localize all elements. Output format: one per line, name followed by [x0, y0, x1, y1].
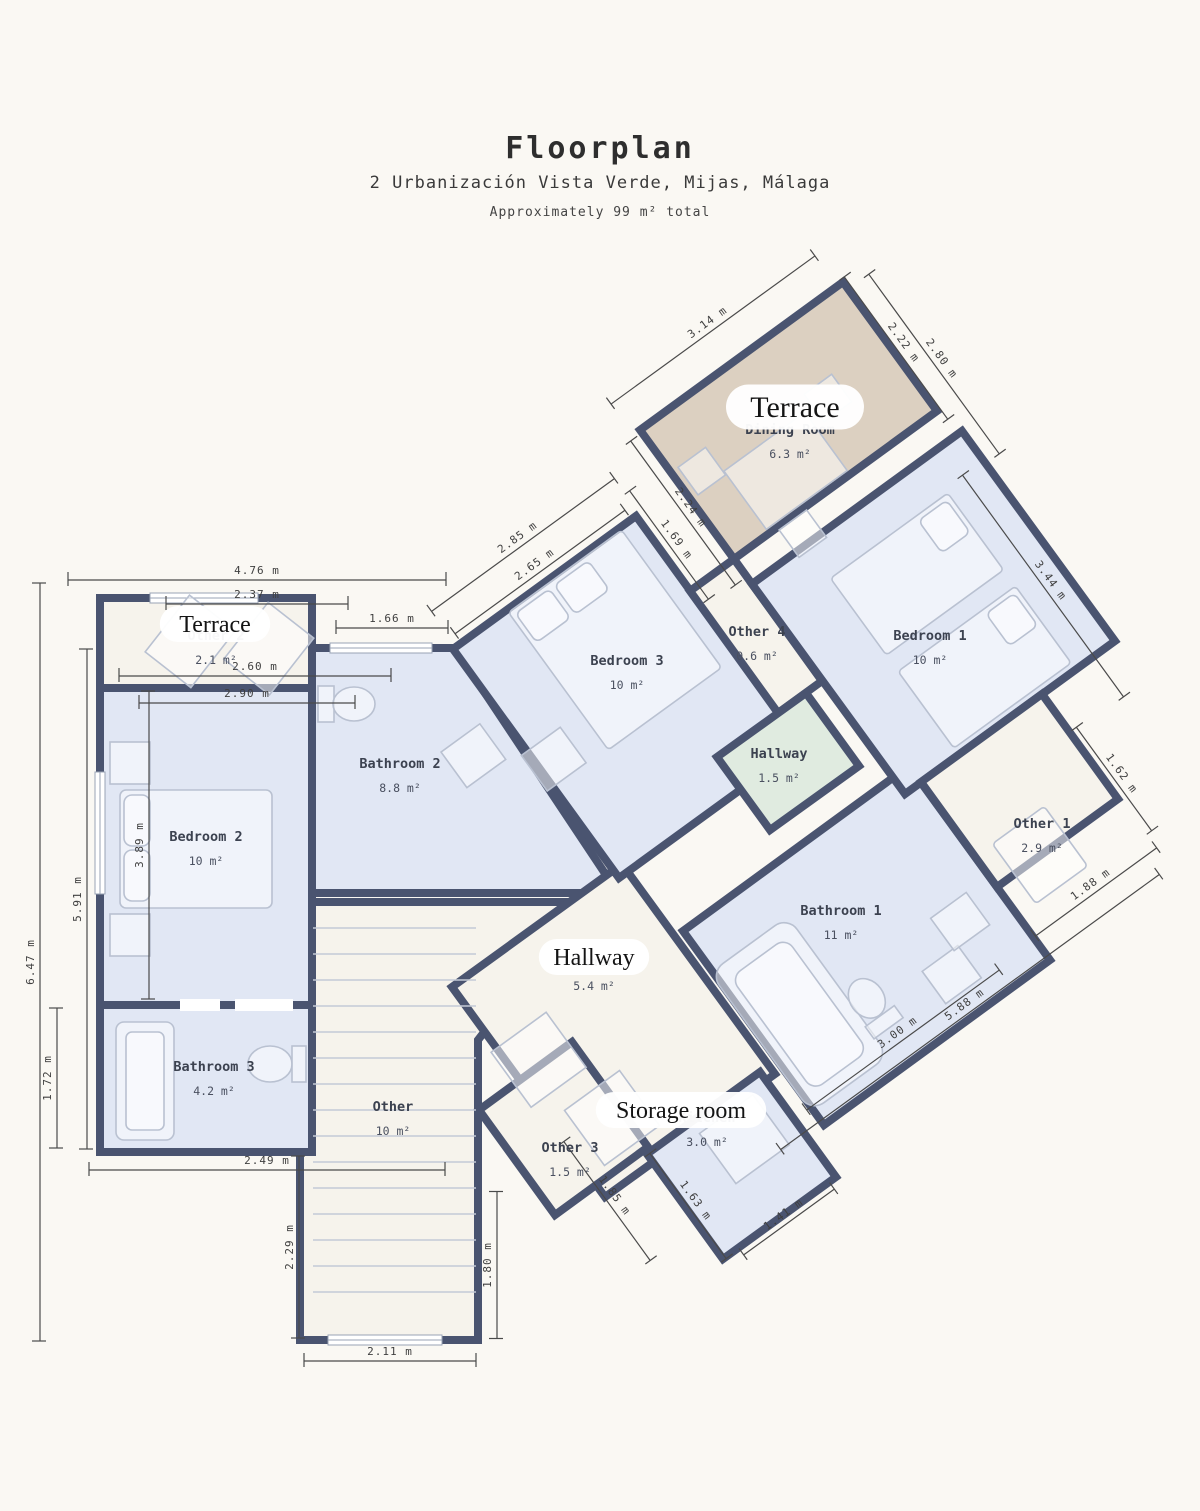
- dimension-4-76-m: 4.76 m: [68, 564, 446, 586]
- door-gap: [180, 999, 220, 1011]
- room-area-text: 10 m²: [189, 854, 224, 868]
- floorplan-page: Floorplan 2 Urbanización Vista Verde, Mi…: [0, 0, 1200, 1511]
- dimension-text: 2.90 m: [224, 687, 270, 700]
- pill-label-hallway: Hallway: [539, 939, 649, 975]
- address-line: 2 Urbanización Vista Verde, Mijas, Málag…: [370, 173, 831, 193]
- room-area-text: 1.5 m²: [549, 1165, 591, 1179]
- dimension-5-91-m: 5.91 m: [71, 649, 93, 1149]
- room-name-text: Other 1: [1014, 816, 1071, 832]
- toilet: [248, 1046, 306, 1082]
- bathtub: [116, 1022, 174, 1140]
- room-area-text: 5.4 m²: [573, 979, 615, 993]
- dimension-text: 4.76 m: [234, 564, 280, 577]
- window: [95, 772, 105, 894]
- dimension-text: 2.49 m: [244, 1154, 290, 1167]
- window: [328, 1335, 442, 1345]
- room-area-text: 2.1 m²: [195, 653, 237, 667]
- pill-text: Terrace: [750, 391, 839, 424]
- room-name-text: Bedroom 1: [893, 628, 966, 644]
- dimension-6-47-m: 6.47 m: [24, 583, 46, 1341]
- floorplan-svg: Floorplan 2 Urbanización Vista Verde, Mi…: [0, 0, 1200, 1511]
- dimension-1-66-m: 1.66 m: [336, 612, 448, 634]
- dimension-text: 1.66 m: [369, 612, 415, 625]
- room-area-text: 10 m²: [610, 678, 645, 692]
- subtitle-line: Approximately 99 m² total: [490, 205, 711, 220]
- window: [330, 643, 432, 653]
- room-area-text: 6.3 m²: [769, 447, 811, 461]
- room-name-text: Hallway: [751, 746, 808, 762]
- room-name-text: Other 3: [542, 1140, 599, 1156]
- dimension-text: 2.37 m: [234, 588, 280, 601]
- page-title: Floorplan: [505, 131, 695, 166]
- room-name-text: Bathroom 1: [800, 903, 881, 919]
- room-name-text: Other 4: [729, 624, 786, 640]
- room-name-text: Bedroom 3: [590, 653, 663, 669]
- pill-label-storage-room: Storage room: [596, 1092, 766, 1128]
- pill-label-terrace: Terrace: [160, 606, 270, 642]
- room-area-text: 11 m²: [824, 928, 859, 942]
- dimension-text: 2.11 m: [367, 1345, 413, 1358]
- dimension-1-72-m: 1.72 m: [41, 1008, 63, 1148]
- room-area-text: 10 m²: [376, 1124, 411, 1138]
- room-area-text: 1.5 m²: [758, 771, 800, 785]
- dimension-text: 2.29 m: [283, 1224, 296, 1270]
- toilet: [318, 686, 375, 722]
- room-name-text: Bathroom 3: [173, 1059, 254, 1075]
- pill-label-terrace: Terrace: [726, 385, 864, 430]
- pill-text: Terrace: [179, 612, 251, 638]
- room-area-text: 10 m²: [913, 653, 948, 667]
- room-area-text: 0.6 m²: [736, 649, 778, 663]
- room-area-text: 3.0 m²: [686, 1135, 728, 1149]
- pill-text: Storage room: [616, 1098, 746, 1124]
- room-name-text: Bathroom 2: [359, 756, 440, 772]
- door-gap: [235, 999, 293, 1011]
- pill-text: Hallway: [553, 945, 634, 971]
- room-area-text: 4.2 m²: [193, 1084, 235, 1098]
- header: Floorplan 2 Urbanización Vista Verde, Mi…: [370, 131, 831, 220]
- dimension-1-80-m: 1.80 m: [481, 1192, 503, 1339]
- dimension-text: 2.60 m: [232, 660, 278, 673]
- dimension-text: 3.89 m: [133, 822, 146, 868]
- dimension-text: 1.72 m: [41, 1055, 54, 1101]
- dimension-2-11-m: 2.11 m: [304, 1345, 476, 1367]
- dimension-text: 1.80 m: [481, 1242, 494, 1288]
- room-name-text: Other: [373, 1099, 414, 1115]
- dimension-text: 6.47 m: [24, 939, 37, 985]
- dimension-text: 5.91 m: [71, 876, 84, 922]
- room-area-text: 8.8 m²: [379, 781, 421, 795]
- room-area-text: 2.9 m²: [1021, 841, 1063, 855]
- room-name-text: Bedroom 2: [169, 829, 242, 845]
